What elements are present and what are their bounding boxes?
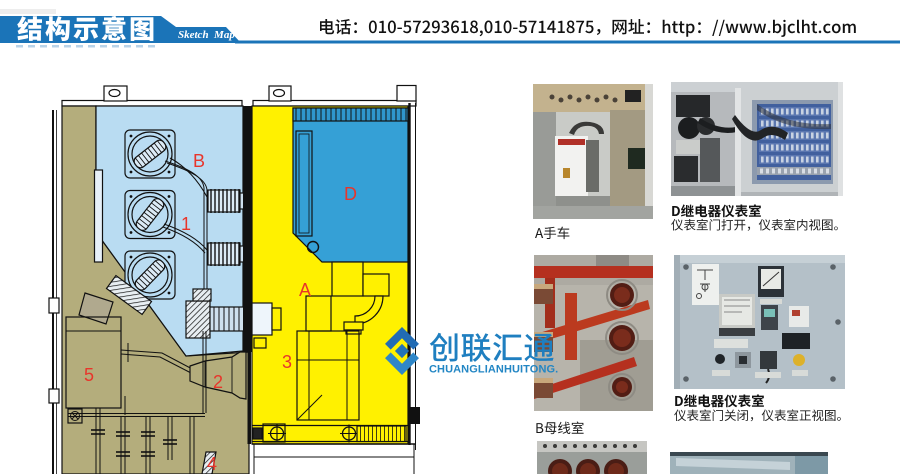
svg-text:1: 1 bbox=[181, 214, 191, 234]
svg-text:2: 2 bbox=[213, 372, 223, 392]
svg-text:4: 4 bbox=[207, 454, 217, 474]
svg-text:A: A bbox=[299, 280, 311, 300]
svg-text:B: B bbox=[193, 151, 205, 171]
svg-text:3: 3 bbox=[282, 352, 292, 372]
svg-text:CHUANGLIANHUITONG.: CHUANGLIANHUITONG. bbox=[429, 364, 558, 376]
svg-text:Sketch Map: Sketch Map bbox=[178, 29, 235, 41]
svg-text:D: D bbox=[344, 184, 357, 204]
svg-text:5: 5 bbox=[84, 365, 94, 385]
